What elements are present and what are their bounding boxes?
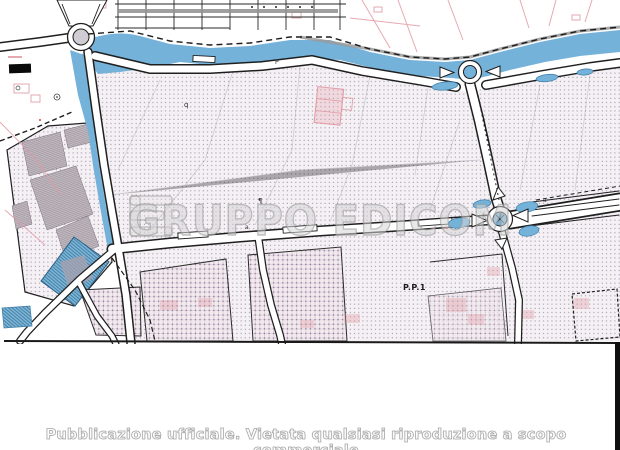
glyph-mark: P	[275, 59, 279, 66]
scan-edge-strip	[615, 342, 620, 450]
glyph-mark: ¶	[258, 197, 262, 205]
glyph-mark: a	[543, 197, 547, 204]
roundabout-west	[68, 24, 95, 51]
red-dot-mark	[446, 227, 448, 229]
zone-label-pp1: P.P.1	[403, 283, 426, 292]
black-building	[9, 64, 31, 74]
well-symbol-dot	[56, 96, 58, 98]
plan-map: q ¶ P a a P.P.1	[0, 0, 620, 450]
scanned-plan-page: q ¶ P a a P.P.1 GRUPPO EDICOM Pubblicazi…	[0, 0, 620, 450]
glyph-mark: a	[245, 224, 249, 231]
glyph-mark: q	[184, 101, 188, 109]
red-dot-mark	[39, 119, 41, 121]
